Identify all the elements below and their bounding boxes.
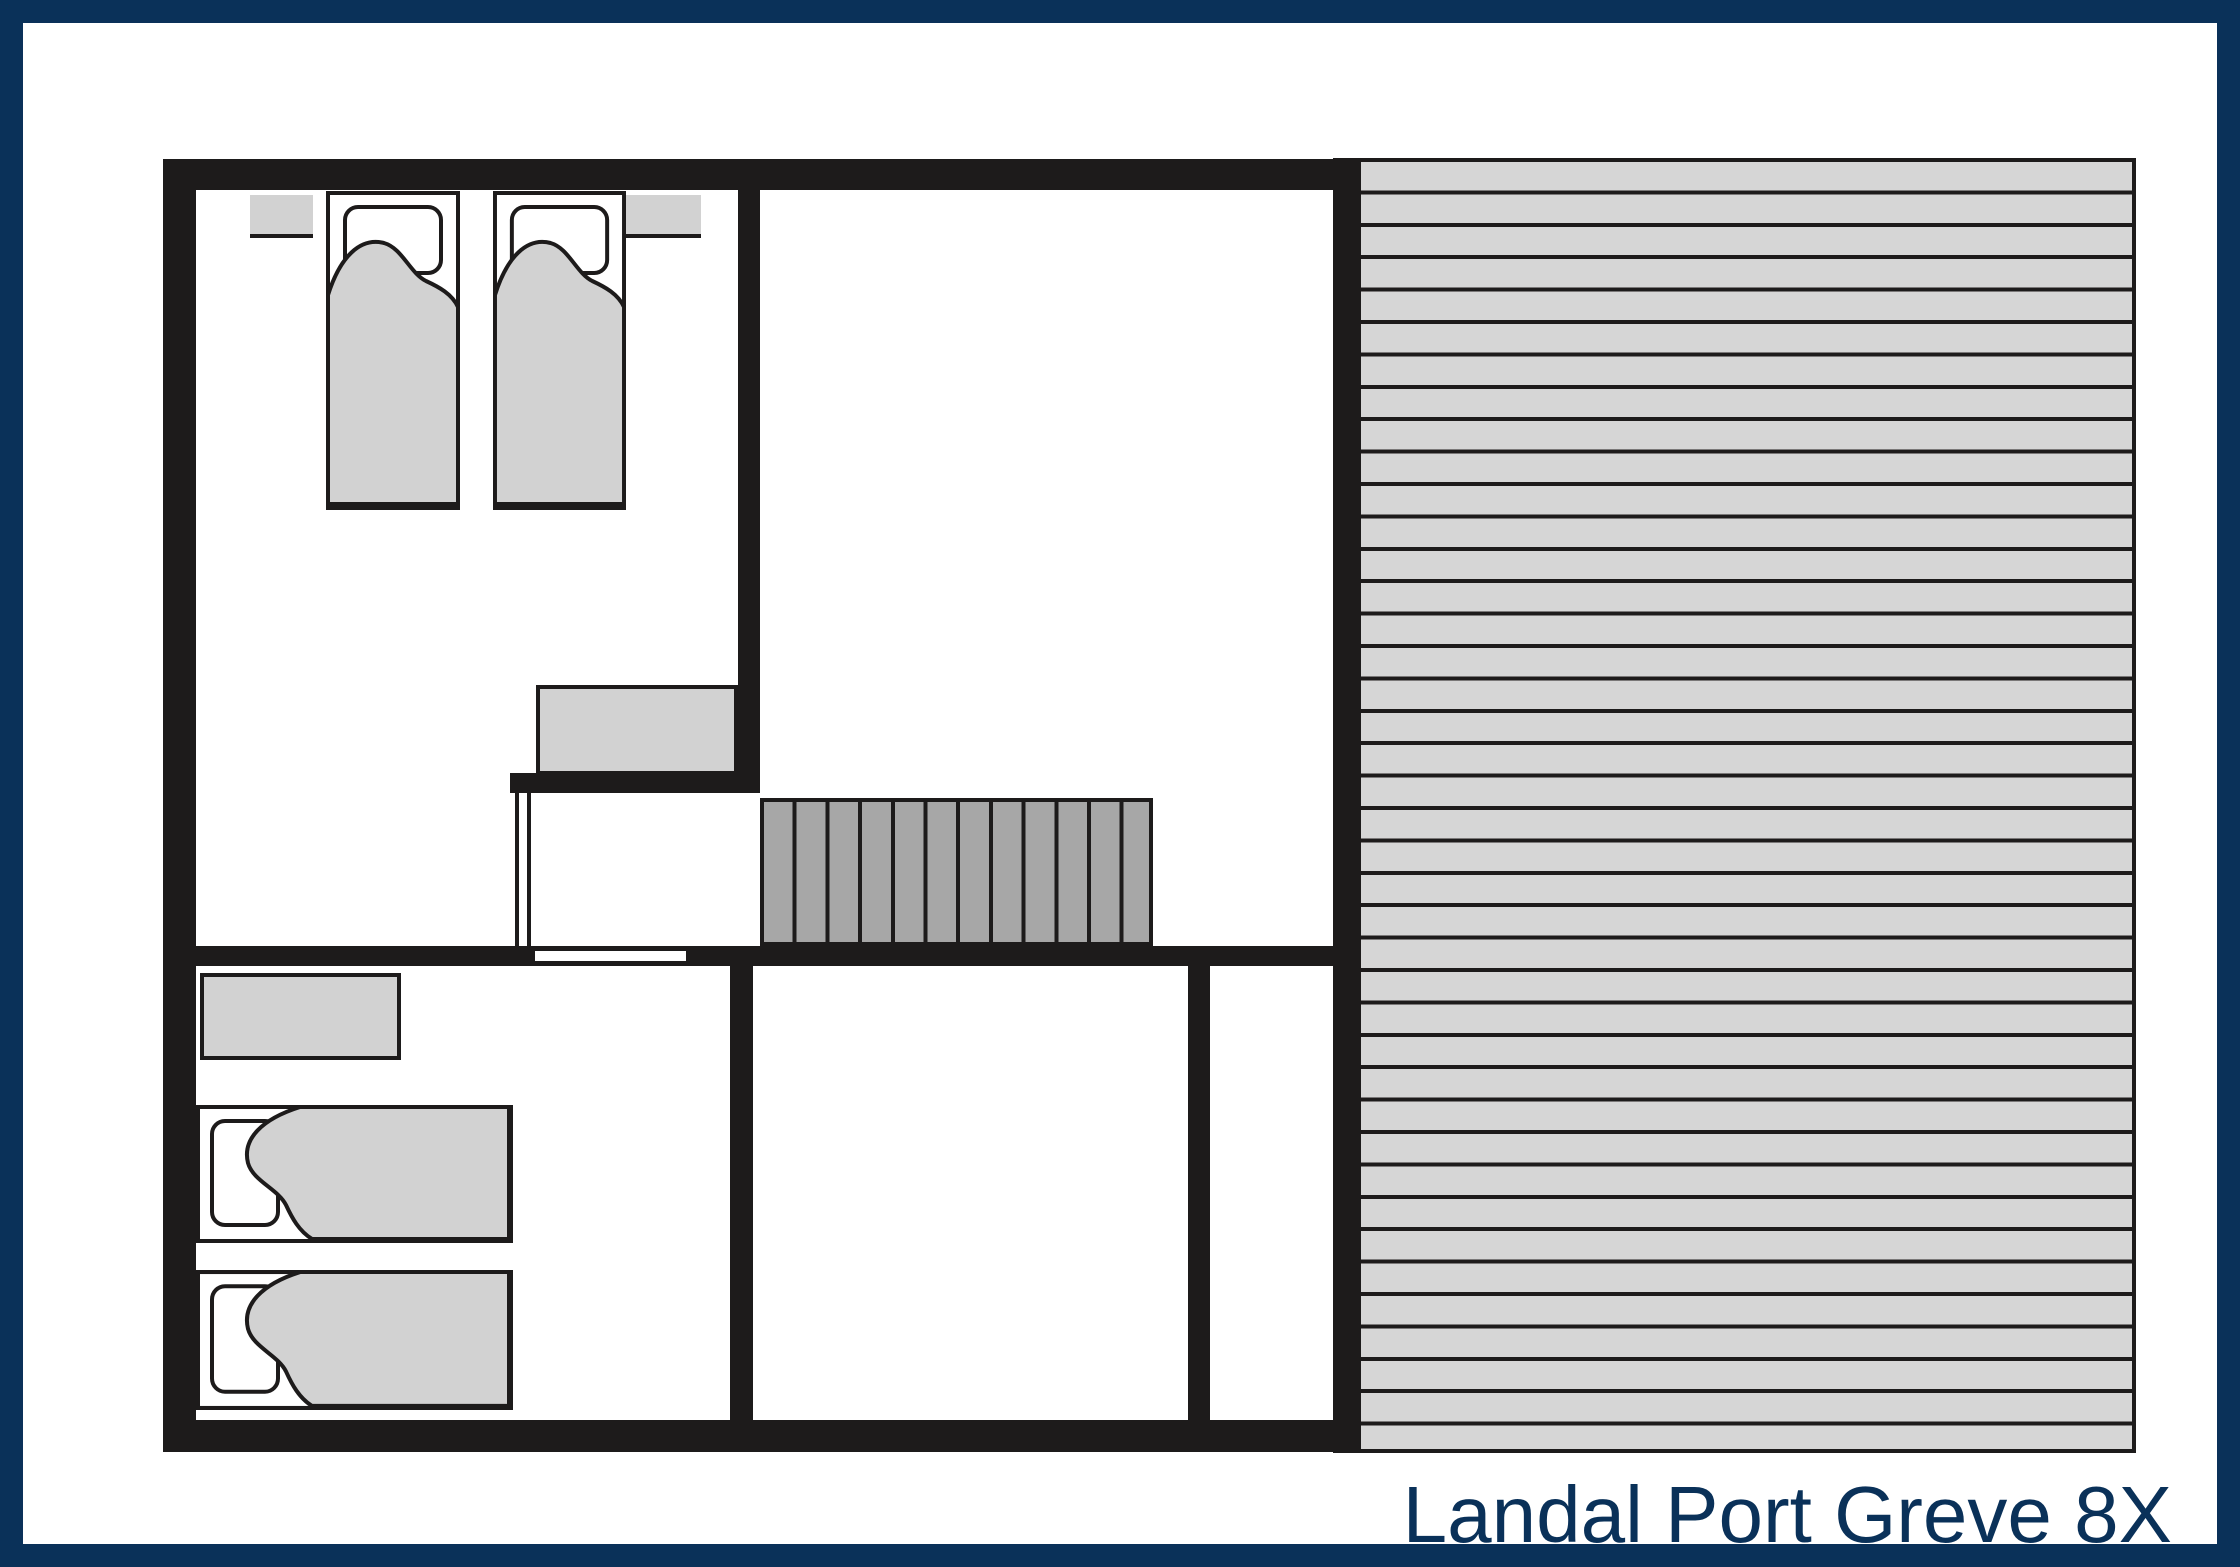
staircase bbox=[760, 798, 1153, 946]
wall-bedroom-divider bbox=[738, 190, 760, 790]
door-opening bbox=[535, 951, 686, 961]
wall-mid-divider bbox=[163, 946, 1333, 966]
terrace-deck bbox=[1361, 158, 2136, 1453]
floorplan-page: Landal Port Greve 8X bbox=[0, 0, 2240, 1567]
wall-bottom-right-room bbox=[1188, 966, 1210, 1420]
wall-left bbox=[163, 159, 196, 1452]
wall-bottom bbox=[163, 1420, 1361, 1452]
wardrobe bbox=[536, 685, 738, 775]
wall-under-wardrobe bbox=[510, 773, 760, 793]
wall-top bbox=[163, 159, 1333, 190]
nightstand-left bbox=[250, 195, 313, 238]
single-bed-2 bbox=[493, 191, 626, 510]
wall-right-house bbox=[1333, 158, 1361, 1453]
single-bed-4 bbox=[196, 1270, 513, 1410]
plan-caption: Landal Port Greve 8X bbox=[1403, 1469, 2172, 1561]
single-bed-1 bbox=[326, 191, 460, 510]
single-bed-3 bbox=[196, 1105, 513, 1243]
hall-partition-line-outer bbox=[515, 793, 519, 946]
wall-bottom-rooms-divider bbox=[730, 966, 753, 1420]
sideboard bbox=[200, 973, 401, 1060]
nightstand-right bbox=[626, 195, 701, 238]
hall-partition-line-inner bbox=[527, 793, 531, 946]
